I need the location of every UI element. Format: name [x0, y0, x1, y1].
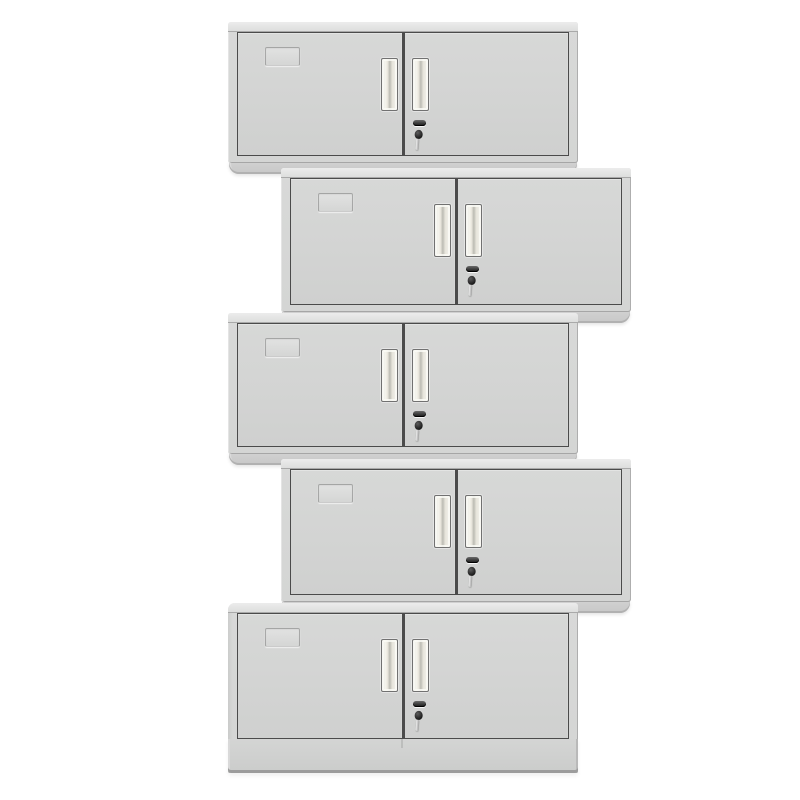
left-door-handle — [381, 639, 398, 692]
left-door — [237, 323, 403, 447]
left-door — [237, 32, 403, 156]
cabinet-base — [228, 739, 578, 773]
key-shaft — [416, 430, 420, 441]
right-door-handle — [412, 58, 429, 111]
key-icon — [411, 420, 428, 441]
key-icon — [411, 129, 428, 150]
lock-with-key — [465, 266, 481, 308]
key-icon — [464, 275, 481, 296]
right-door-handle — [465, 204, 482, 257]
cabinet-unit — [228, 603, 578, 773]
key-shaft — [416, 720, 420, 731]
left-door-handle — [381, 58, 398, 111]
cabinet-unit — [281, 459, 631, 602]
cabinet-body — [228, 22, 578, 163]
cabinet-unit — [228, 313, 578, 454]
cabinet-unit — [281, 168, 631, 312]
cabinet-body — [281, 459, 631, 602]
right-door-handle — [465, 495, 482, 548]
key-head — [414, 130, 423, 140]
cabinet-top-edge — [228, 22, 578, 32]
cabinet-top-edge — [228, 603, 578, 613]
key-icon — [411, 710, 428, 731]
label-card-holder-icon — [265, 628, 300, 647]
key-head — [414, 421, 423, 431]
left-door — [237, 613, 403, 739]
key-shaft — [469, 285, 473, 296]
key-icon — [464, 566, 481, 587]
lock-with-key — [412, 411, 428, 453]
keyhole-icon — [413, 701, 426, 707]
left-door-handle — [381, 349, 398, 402]
cabinet-body — [281, 168, 631, 312]
left-door-handle — [434, 495, 451, 548]
label-card-holder-icon — [265, 47, 300, 66]
right-door-handle — [412, 349, 429, 402]
lock-with-key — [465, 557, 481, 599]
cabinet-unit — [228, 22, 578, 163]
key-head — [414, 711, 423, 721]
product-photo — [0, 0, 800, 800]
keyhole-icon — [413, 411, 426, 417]
cabinet-body — [228, 603, 578, 773]
right-door-handle — [412, 639, 429, 692]
keyhole-icon — [466, 266, 479, 272]
label-card-holder-icon — [318, 484, 353, 503]
cabinet-body — [228, 313, 578, 454]
lock-with-key — [412, 701, 428, 743]
cabinet-top-edge — [281, 168, 631, 178]
lock-with-key — [412, 120, 428, 162]
keyhole-icon — [413, 120, 426, 126]
cabinet-top-edge — [281, 459, 631, 469]
cabinet-top-edge — [228, 313, 578, 323]
left-door — [290, 469, 456, 595]
key-head — [467, 567, 476, 577]
keyhole-icon — [466, 557, 479, 563]
label-card-holder-icon — [265, 338, 300, 357]
left-door-handle — [434, 204, 451, 257]
key-shaft — [416, 139, 420, 150]
left-door — [290, 178, 456, 305]
label-card-holder-icon — [318, 193, 353, 212]
key-head — [467, 276, 476, 286]
key-shaft — [469, 576, 473, 587]
